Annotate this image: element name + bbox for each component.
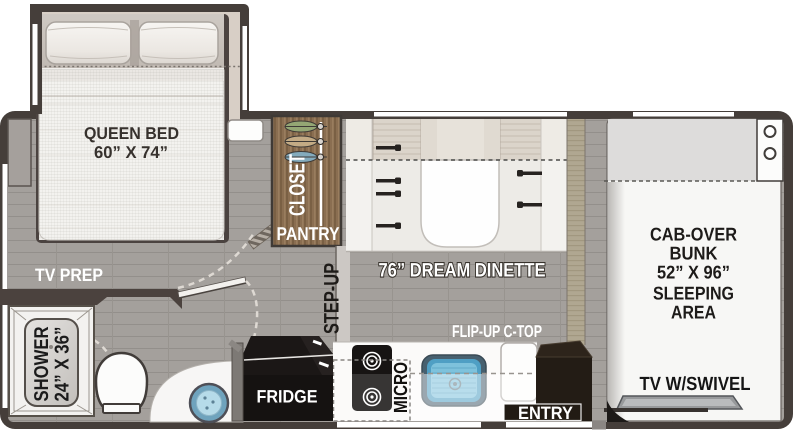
svg-text:PANTRY: PANTRY: [277, 223, 341, 244]
svg-text:MICRO: MICRO: [391, 362, 412, 413]
svg-text:AREA: AREA: [671, 302, 716, 323]
svg-text:QUEEN BED: QUEEN BED: [84, 124, 179, 143]
svg-text:SLEEPING: SLEEPING: [653, 283, 734, 304]
svg-text:CLOSET: CLOSET: [285, 154, 310, 216]
svg-text:TV PREP: TV PREP: [35, 265, 103, 285]
svg-text:ENTRY: ENTRY: [518, 403, 573, 423]
svg-text:STEP-UP: STEP-UP: [321, 263, 344, 334]
svg-text:76” DREAM DINETTE: 76” DREAM DINETTE: [379, 260, 546, 282]
svg-text:52” X 96”: 52” X 96”: [657, 262, 730, 283]
svg-text:CAB-OVER: CAB-OVER: [650, 224, 737, 245]
svg-text:60” X 74”: 60” X 74”: [94, 143, 168, 162]
svg-text:SHOWER: SHOWER: [31, 326, 53, 401]
svg-text:24” X 36”: 24” X 36”: [52, 327, 74, 402]
svg-text:FLIP-UP C-TOP: FLIP-UP C-TOP: [452, 322, 542, 341]
svg-text:TV W/SWIVEL: TV W/SWIVEL: [640, 374, 751, 395]
svg-text:FRIDGE: FRIDGE: [257, 387, 318, 407]
svg-text:BUNK: BUNK: [670, 243, 719, 264]
